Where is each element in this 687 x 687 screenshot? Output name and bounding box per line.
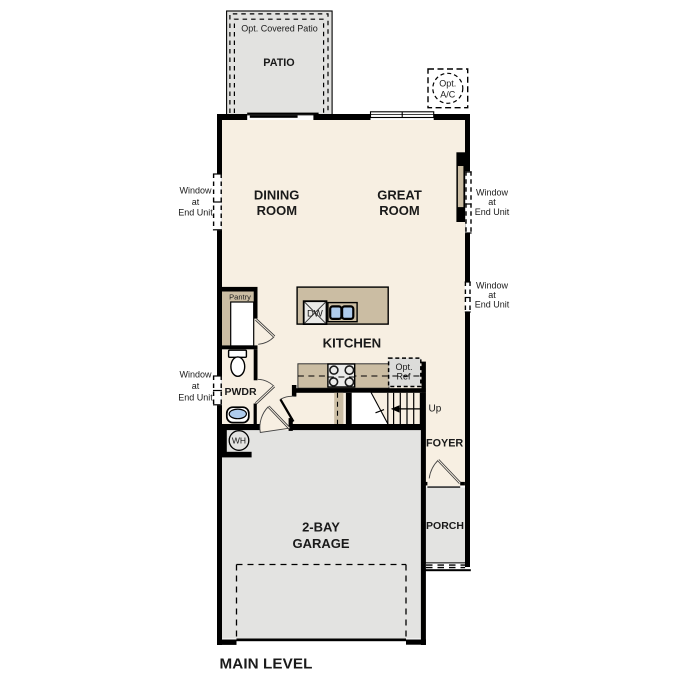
svg-text:at: at [192,381,200,391]
svg-text:PWDR: PWDR [224,386,256,398]
svg-text:at: at [488,290,496,300]
svg-text:End Unit: End Unit [178,207,213,217]
svg-text:KITCHEN: KITCHEN [323,336,382,351]
svg-text:ROOM: ROOM [257,203,297,218]
svg-text:PORCH: PORCH [426,520,464,532]
svg-text:Pantry: Pantry [229,293,251,302]
svg-text:GREAT: GREAT [377,188,422,203]
svg-text:End Unit: End Unit [178,393,213,403]
svg-text:PATIO: PATIO [263,57,294,69]
svg-text:FOYER: FOYER [426,437,463,449]
svg-text:End Unit: End Unit [475,207,510,217]
svg-text:DW: DW [307,309,323,320]
svg-text:Opt.: Opt. [395,362,412,372]
svg-text:ROOM: ROOM [379,203,419,218]
svg-text:End Unit: End Unit [475,300,510,310]
svg-text:Opt. Covered Patio: Opt. Covered Patio [241,24,318,34]
svg-text:GARAGE: GARAGE [292,536,349,551]
svg-text:WH: WH [232,436,246,446]
svg-text:Opt.: Opt. [439,79,456,89]
svg-text:Window: Window [179,186,212,196]
svg-text:Ref: Ref [396,372,411,382]
svg-text:DINING: DINING [254,188,300,203]
svg-text:MAIN LEVEL: MAIN LEVEL [220,656,313,673]
svg-text:Window: Window [179,370,212,380]
svg-text:at: at [488,197,496,207]
svg-text:A/C: A/C [440,90,456,100]
svg-text:2-BAY: 2-BAY [302,520,340,535]
svg-text:at: at [192,197,200,207]
svg-text:Up: Up [429,404,442,415]
svg-text:Window: Window [476,187,509,197]
svg-text:Window: Window [476,280,509,290]
